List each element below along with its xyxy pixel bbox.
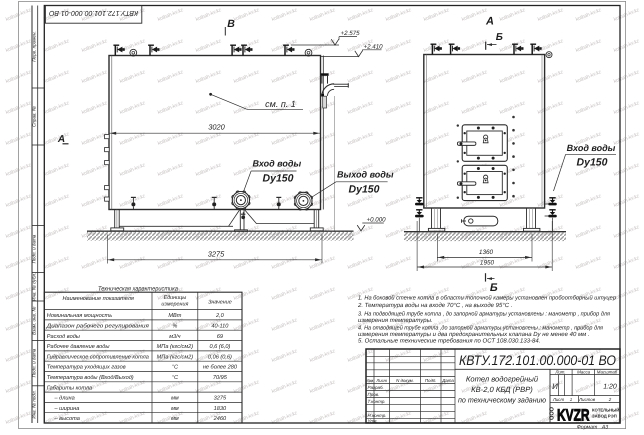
svg-text:Подп.: Подп. <box>425 378 437 383</box>
svg-text:Б: Б <box>490 282 498 294</box>
svg-text:2,0: 2,0 <box>215 313 225 319</box>
svg-text:Единицы: Единицы <box>164 295 187 301</box>
svg-text:Выход воды: Выход воды <box>337 169 394 179</box>
svg-text:0,06 (0,6): 0,06 (0,6) <box>208 353 232 360</box>
svg-text:69: 69 <box>217 334 223 340</box>
svg-text:Температура уходящих газов: Температура уходящих газов <box>47 364 126 371</box>
svg-text:Инв. № дубл.: Инв. № дубл. <box>32 273 37 301</box>
svg-text:ООО: ООО <box>549 407 556 420</box>
svg-text:Разраб.: Разраб. <box>368 385 384 390</box>
svg-text:А3: А3 <box>601 425 608 431</box>
svg-text:Утв.: Утв. <box>368 419 378 424</box>
svg-text:1. На боковой стенке котла: 1. На боковой стенке котла в области топ… <box>358 294 617 301</box>
svg-text:4. На отводящей трубе котл: 4. На отводящей трубе котла ,до запорной… <box>358 325 604 332</box>
svg-text:°С: °С <box>172 375 179 381</box>
svg-text:см. п. 1: см. п. 1 <box>265 99 296 109</box>
svg-text:– ширина: – ширина <box>54 406 80 412</box>
svg-text:Dy150: Dy150 <box>577 157 608 169</box>
svg-text:Н.контр.: Н.контр. <box>368 413 387 418</box>
svg-text:И: И <box>552 382 558 391</box>
svg-text:3. На подводящей трубе кот: 3. На подводящей трубе котла , до запорн… <box>358 310 611 317</box>
svg-text:Габариты котла: Габариты котла <box>47 384 92 391</box>
svg-text:Рабочее давление воды: Рабочее давление воды <box>47 343 110 350</box>
svg-text:Лит.: Лит. <box>554 369 565 374</box>
svg-text:0,6 (6,0): 0,6 (6,0) <box>209 343 230 350</box>
svg-text:Вход воды: Вход воды <box>252 158 301 168</box>
svg-text:Масштаб: Масштаб <box>597 369 618 374</box>
svg-text:Формат: Формат <box>577 425 598 431</box>
svg-text:2. Температура воды на вхо: 2. Температура воды на входе 70°С , на в… <box>357 302 512 309</box>
svg-text:Б: Б <box>496 32 503 43</box>
svg-text:измерения температуры.: измерения температуры. <box>358 318 433 324</box>
svg-text:2460: 2460 <box>213 416 227 422</box>
svg-text:Номинальная мощность: Номинальная мощность <box>47 313 112 319</box>
svg-text:Дата: Дата <box>441 378 454 383</box>
svg-text:– длина: – длина <box>54 395 75 402</box>
svg-text:МПа (кгс/см2): МПа (кгс/см2) <box>157 353 194 360</box>
svg-text:– высота: – высота <box>54 416 80 422</box>
svg-text:А: А <box>485 16 494 28</box>
svg-text:Лист: Лист <box>552 397 565 402</box>
svg-text:Гидравлическое сопротивление к: Гидравлическое сопротивление котла <box>47 353 149 360</box>
svg-text:Инв. № подл.: Инв. № подл. <box>32 390 37 419</box>
svg-text:Подп. и дата: Подп. и дата <box>32 348 37 377</box>
svg-text:В: В <box>227 18 235 30</box>
svg-text:МВт: МВт <box>168 313 181 319</box>
svg-text:КВТУ.172.101.00.000-01 ВО: КВТУ.172.101.00.000-01 ВО <box>49 9 139 16</box>
svg-text:Пров.: Пров. <box>368 392 380 397</box>
svg-text:КВ-2,0 КБД (РВР): КВ-2,0 КБД (РВР) <box>471 385 533 394</box>
svg-text:Перв. примен.: Перв. примен. <box>32 31 37 62</box>
svg-text:измерения: измерения <box>161 302 188 308</box>
svg-text:КОТЕЛЬНЫЙ: КОТЕЛЬНЫЙ <box>592 408 619 413</box>
svg-text:+0.000: +0.000 <box>367 217 387 224</box>
svg-text:1360: 1360 <box>479 249 494 256</box>
svg-text:КВТУ.172.101.00.000-01 ВО: КВТУ.172.101.00.000-01 ВО <box>459 353 616 368</box>
svg-text:Лист: Лист <box>375 378 387 383</box>
svg-text:Взам. инв. №: Взам. инв. № <box>32 306 37 334</box>
svg-text:3275: 3275 <box>208 250 225 259</box>
svg-text:2: 2 <box>608 397 612 402</box>
svg-text:Подп. и дата: Подп. и дата <box>32 234 37 263</box>
svg-text:KVZR: KVZR <box>557 407 590 425</box>
svg-text:Листов: Листов <box>578 397 596 402</box>
svg-text:%: % <box>172 324 177 330</box>
svg-text:Диапазон рабочего регулировани: Диапазон рабочего регулирования <box>46 323 149 330</box>
svg-text:МПа (кгс/см2): МПа (кгс/см2) <box>157 343 194 350</box>
svg-text:Расход воды: Расход воды <box>47 333 80 340</box>
svg-text:+2.410: +2.410 <box>364 43 384 50</box>
svg-text:5. Остальные технические тр: 5. Остальные технические требования по О… <box>358 338 540 345</box>
svg-text:3020: 3020 <box>208 123 225 132</box>
svg-text:40-110: 40-110 <box>211 324 229 330</box>
svg-text:измерения температуры и два: измерения температуры и два предохраните… <box>358 331 590 338</box>
svg-text:ЗАВОД РЭП: ЗАВОД РЭП <box>592 414 617 419</box>
svg-text:Температура воды (Вход/Выход): Температура воды (Вход/Выход) <box>47 374 134 381</box>
svg-text:Справ. №: Справ. № <box>32 106 37 127</box>
svg-text:мм: мм <box>171 416 179 422</box>
svg-text:1:20: 1:20 <box>603 384 617 391</box>
svg-text:мм: мм <box>171 396 179 402</box>
svg-text:Техническая характеристика: Техническая характеристика <box>98 285 179 292</box>
svg-text:Наименование показателя: Наименование показателя <box>63 296 134 302</box>
svg-text:70/95: 70/95 <box>213 374 228 381</box>
svg-text:Dy150: Dy150 <box>263 172 294 184</box>
svg-text:N докум.: N докум. <box>396 378 414 383</box>
svg-text:не более 280: не более 280 <box>203 364 238 371</box>
svg-text:Dy150: Dy150 <box>349 183 380 195</box>
svg-text:м3/ч: м3/ч <box>169 333 180 340</box>
svg-text:1830: 1830 <box>214 406 227 412</box>
svg-text:мм: мм <box>171 406 179 412</box>
svg-text:3275: 3275 <box>214 396 227 402</box>
svg-text:Котел водогрейный: Котел водогрейный <box>466 375 539 384</box>
svg-text:Вход воды: Вход воды <box>567 143 616 153</box>
svg-text:+2.575: +2.575 <box>341 30 361 37</box>
svg-text:Изм.: Изм. <box>366 378 375 383</box>
svg-text:°С: °С <box>172 365 179 371</box>
svg-text:Т.контр.: Т.контр. <box>368 399 386 404</box>
svg-text:по техническому заданию: по техническому заданию <box>458 396 546 405</box>
svg-text:Масса: Масса <box>577 369 591 374</box>
svg-text:1950: 1950 <box>480 259 495 266</box>
svg-text:Значение: Значение <box>208 300 232 306</box>
